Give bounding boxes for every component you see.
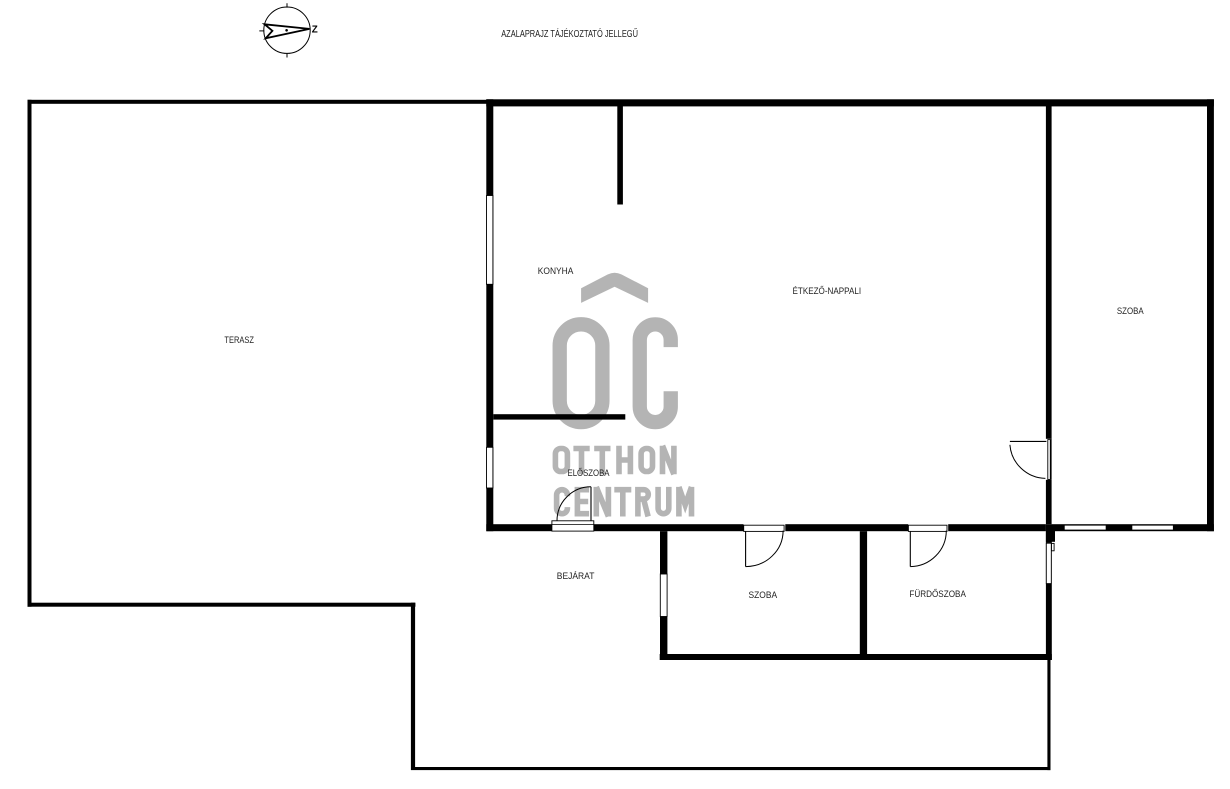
svg-text:ÉTKEZŐ-NAPPALI: ÉTKEZŐ-NAPPALI	[793, 286, 862, 297]
svg-text:TERASZ: TERASZ	[224, 335, 254, 346]
svg-text:FÜRDŐSZOBA: FÜRDŐSZOBA	[909, 589, 966, 600]
svg-text:SZOBA: SZOBA	[749, 590, 778, 601]
svg-text:KONYHA: KONYHA	[538, 266, 574, 277]
svg-text:Z: Z	[312, 24, 318, 35]
svg-text:SZOBA: SZOBA	[1117, 306, 1144, 317]
svg-text:BEJÁRAT: BEJÁRAT	[557, 571, 595, 582]
svg-text:AZALAPRAJZ TÁJÉKOZTATÓ JELLEGŰ: AZALAPRAJZ TÁJÉKOZTATÓ JELLEGŰ	[501, 26, 638, 40]
svg-text:ELŐSZOBA: ELŐSZOBA	[568, 468, 610, 479]
